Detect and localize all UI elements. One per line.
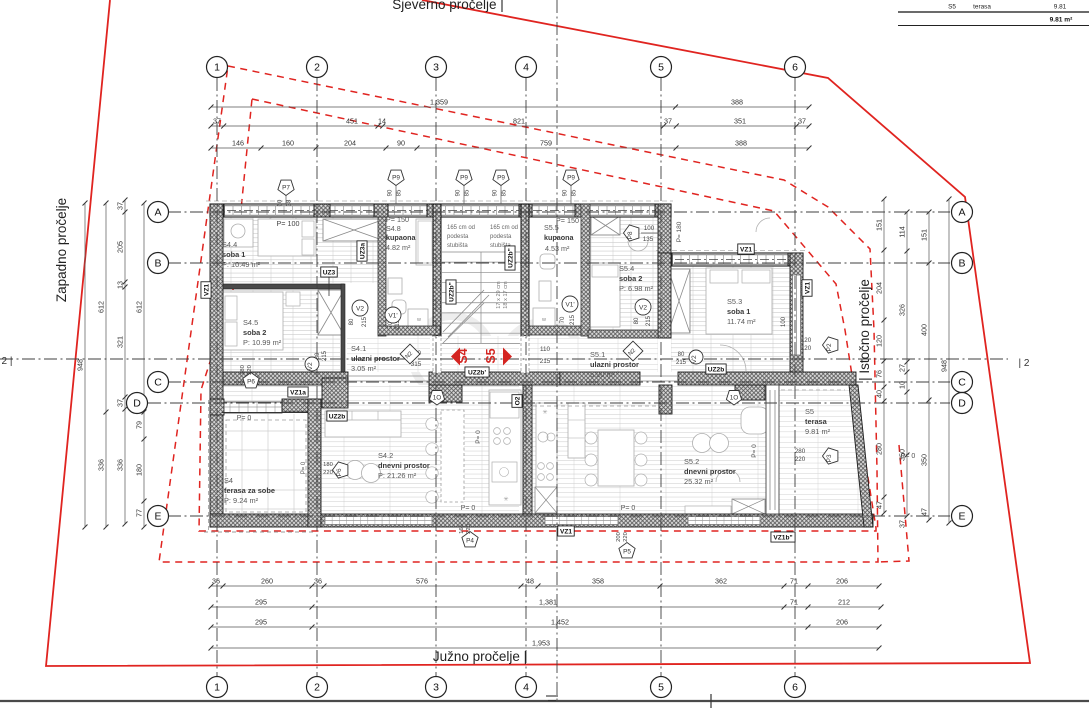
svg-text:350: 350 xyxy=(920,454,929,466)
svg-text:P8: P8 xyxy=(627,231,634,239)
svg-text:5.20 m²: 5.20 m² xyxy=(590,370,616,379)
svg-text:S5: S5 xyxy=(484,348,498,363)
svg-text:S5: S5 xyxy=(805,407,814,416)
svg-text:100: 100 xyxy=(644,225,655,232)
svg-text:1,381: 1,381 xyxy=(539,598,557,607)
svg-text:3.05 m²: 3.05 m² xyxy=(351,364,377,373)
svg-text:B: B xyxy=(958,258,965,270)
svg-text:S4.5: S4.5 xyxy=(243,318,258,327)
svg-text:ulazni prostor: ulazni prostor xyxy=(590,360,639,369)
svg-text:100: 100 xyxy=(781,316,787,327)
svg-text:E: E xyxy=(958,511,965,523)
svg-text:90: 90 xyxy=(563,189,569,196)
svg-text:47: 47 xyxy=(875,501,884,509)
svg-text:165: 165 xyxy=(459,524,465,534)
svg-text:E: E xyxy=(154,511,161,523)
svg-text:362: 362 xyxy=(715,577,727,586)
svg-text:stubišta: stubišta xyxy=(447,243,468,249)
svg-text:dnevni prostor: dnevni prostor xyxy=(378,461,430,470)
svg-text:P: 10.49 m²: P: 10.49 m² xyxy=(222,260,261,269)
svg-text:terasa: terasa xyxy=(973,4,991,11)
svg-text:P= 0: P= 0 xyxy=(301,461,307,474)
svg-text:17 x 29 cm: 17 x 29 cm xyxy=(496,281,502,309)
svg-text:90: 90 xyxy=(397,139,405,148)
svg-text:85: 85 xyxy=(397,189,403,196)
svg-text:9.81 m²: 9.81 m² xyxy=(805,427,831,436)
svg-text:2 |: 2 | xyxy=(2,356,13,367)
svg-text:4.53 m²: 4.53 m² xyxy=(545,244,570,253)
svg-text:212: 212 xyxy=(838,598,850,607)
svg-text:| 2: | 2 xyxy=(1019,358,1030,369)
svg-text:S4.2: S4.2 xyxy=(378,451,393,460)
svg-text:5: 5 xyxy=(658,62,664,74)
svg-text:UZ2b": UZ2b" xyxy=(507,248,514,268)
svg-text:1O: 1O xyxy=(730,394,739,401)
svg-text:400: 400 xyxy=(920,324,929,336)
svg-text:V2: V2 xyxy=(639,304,647,311)
svg-text:220: 220 xyxy=(466,524,472,534)
svg-text:S5.4: S5.4 xyxy=(619,264,634,273)
svg-text:w: w xyxy=(416,317,421,323)
svg-text:O2: O2 xyxy=(514,396,521,405)
svg-text:76: 76 xyxy=(875,370,884,378)
svg-text:37: 37 xyxy=(798,117,806,126)
svg-text:180: 180 xyxy=(135,464,144,476)
svg-text:948: 948 xyxy=(76,359,85,371)
svg-text:S5.1: S5.1 xyxy=(590,350,605,359)
svg-text:P= 0: P= 0 xyxy=(751,444,758,458)
svg-text:4.82 m²: 4.82 m² xyxy=(386,243,411,252)
svg-text:36: 36 xyxy=(314,577,322,586)
svg-text:9.81: 9.81 xyxy=(1054,4,1067,11)
svg-text:ulazni prostor: ulazni prostor xyxy=(351,354,400,363)
svg-text:dnevni prostor: dnevni prostor xyxy=(684,467,736,476)
svg-text:kupaona: kupaona xyxy=(544,233,575,242)
svg-text:1,953: 1,953 xyxy=(532,639,550,648)
svg-text:38: 38 xyxy=(287,199,293,206)
svg-text:280: 280 xyxy=(795,448,806,455)
svg-text:P: 10.99 m²: P: 10.99 m² xyxy=(243,338,282,347)
svg-text:165 cm od: 165 cm od xyxy=(490,225,518,231)
svg-text:P= 0: P= 0 xyxy=(475,430,482,444)
svg-text:180: 180 xyxy=(323,462,333,468)
svg-text:71: 71 xyxy=(790,598,798,607)
svg-text:160: 160 xyxy=(282,139,294,148)
svg-text:120: 120 xyxy=(801,337,812,344)
svg-text:P9: P9 xyxy=(567,174,575,181)
svg-text:terasa za sobe: terasa za sobe xyxy=(224,486,275,495)
svg-text:77: 77 xyxy=(135,509,144,517)
svg-text:60: 60 xyxy=(278,199,284,206)
svg-text:70: 70 xyxy=(560,316,566,323)
svg-text:P= 100: P= 100 xyxy=(277,219,300,228)
svg-text:40: 40 xyxy=(875,390,884,398)
svg-text:P5: P5 xyxy=(623,548,631,555)
svg-text:280: 280 xyxy=(875,443,884,455)
svg-text:18 x 17 cm: 18 x 17 cm xyxy=(503,281,509,309)
svg-text:VZ1: VZ1 xyxy=(560,528,572,535)
svg-text:UZ3a: UZ3a xyxy=(359,243,366,259)
svg-text:P: 21.26 m²: P: 21.26 m² xyxy=(378,471,417,480)
svg-text:451: 451 xyxy=(346,117,358,126)
svg-text:kupaona: kupaona xyxy=(386,233,417,242)
svg-text:P2: P2 xyxy=(826,343,833,351)
svg-text:P= 0: P= 0 xyxy=(461,505,476,512)
svg-text:37: 37 xyxy=(664,117,672,126)
svg-text:P= 0: P= 0 xyxy=(621,505,636,512)
svg-text:135: 135 xyxy=(643,236,654,243)
svg-text:UZ2b': UZ2b' xyxy=(468,369,486,376)
svg-text:P: 6.98 m²: P: 6.98 m² xyxy=(619,284,654,293)
svg-text:P6: P6 xyxy=(247,378,255,385)
svg-text:110: 110 xyxy=(540,346,551,353)
svg-text:220: 220 xyxy=(623,532,629,542)
svg-text:1,359: 1,359 xyxy=(430,98,448,107)
svg-text:UZ3: UZ3 xyxy=(323,269,336,276)
svg-text:576: 576 xyxy=(416,577,428,586)
svg-text:Zapadno pročelje: Zapadno pročelje xyxy=(54,198,69,302)
svg-text:90: 90 xyxy=(493,189,499,196)
svg-text:25.32 m²: 25.32 m² xyxy=(684,477,714,486)
svg-text:321: 321 xyxy=(116,336,125,348)
svg-text:A: A xyxy=(154,207,161,219)
svg-text:759: 759 xyxy=(540,139,552,148)
svg-text:200: 200 xyxy=(616,532,622,542)
svg-text:180: 180 xyxy=(240,365,246,375)
svg-text:P3: P3 xyxy=(826,454,833,462)
svg-text:220: 220 xyxy=(795,456,806,463)
svg-text:✳: ✳ xyxy=(542,409,547,416)
svg-text:VZ1a: VZ1a xyxy=(290,389,306,396)
svg-text:soba 1: soba 1 xyxy=(727,307,750,316)
svg-text:37: 37 xyxy=(898,520,907,528)
svg-text:w: w xyxy=(541,317,546,323)
svg-text:85: 85 xyxy=(465,189,471,196)
svg-text:80: 80 xyxy=(678,352,685,358)
svg-text:C: C xyxy=(154,377,162,389)
svg-text:6: 6 xyxy=(792,62,798,74)
svg-text:terasa: terasa xyxy=(805,417,828,426)
svg-text:P= 150: P= 150 xyxy=(386,215,409,224)
svg-text:P4: P4 xyxy=(466,537,474,544)
svg-text:D: D xyxy=(133,398,141,410)
svg-text:✳: ✳ xyxy=(503,496,508,503)
svg-text:P6: P6 xyxy=(336,468,343,476)
svg-text:5: 5 xyxy=(658,682,664,694)
svg-text:V2: V2 xyxy=(307,362,314,370)
svg-text:VZ1: VZ1 xyxy=(203,284,210,296)
svg-text:2: 2 xyxy=(314,62,320,74)
svg-text:90: 90 xyxy=(456,189,462,196)
svg-text:204: 204 xyxy=(875,282,884,294)
svg-text:3: 3 xyxy=(433,62,439,74)
svg-text:P: 9.24 m²: P: 9.24 m² xyxy=(224,496,259,505)
svg-text:V1': V1' xyxy=(388,312,397,319)
svg-text:P= 180: P= 180 xyxy=(676,221,683,242)
svg-text:215: 215 xyxy=(540,358,551,365)
svg-text:80: 80 xyxy=(634,317,640,324)
svg-text:S4: S4 xyxy=(456,348,470,363)
svg-text:P9: P9 xyxy=(497,174,505,181)
svg-text:1: 1 xyxy=(214,682,220,694)
svg-text:948: 948 xyxy=(940,360,949,372)
svg-text:P= 0: P= 0 xyxy=(237,415,252,422)
svg-text:336: 336 xyxy=(97,459,106,471)
svg-text:220: 220 xyxy=(323,470,333,476)
svg-text:206: 206 xyxy=(836,618,848,627)
svg-text:VZ1: VZ1 xyxy=(740,246,752,253)
svg-text:S5: S5 xyxy=(948,4,956,11)
svg-text:48: 48 xyxy=(526,577,534,586)
svg-text:Južno pročelje |: Južno pročelje | xyxy=(433,649,527,664)
svg-text:podesta: podesta xyxy=(447,234,469,240)
svg-text:37: 37 xyxy=(116,399,125,407)
svg-text:120: 120 xyxy=(875,335,884,347)
svg-text:260: 260 xyxy=(261,577,273,586)
svg-text:204: 204 xyxy=(344,139,356,148)
svg-text:VZ1: VZ1 xyxy=(804,282,811,294)
svg-text:soba 2: soba 2 xyxy=(243,328,266,337)
svg-text:V1': V1' xyxy=(565,301,574,308)
svg-text:S4: S4 xyxy=(224,476,233,485)
svg-text:P= 150: P= 150 xyxy=(556,216,579,225)
svg-text:2: 2 xyxy=(314,682,320,694)
svg-text:165 cm od: 165 cm od xyxy=(447,225,475,231)
svg-text:Sjeverno pročelje |: Sjeverno pročelje | xyxy=(392,0,504,12)
svg-text:UZ2b": UZ2b" xyxy=(448,282,455,302)
svg-text:388: 388 xyxy=(735,139,747,148)
svg-text:14: 14 xyxy=(378,117,386,126)
svg-text:VZ1b": VZ1b" xyxy=(773,534,792,541)
svg-text:S4.8: S4.8 xyxy=(386,224,401,233)
svg-text:336: 336 xyxy=(116,459,125,471)
svg-text:9.81 m²: 9.81 m² xyxy=(1050,17,1074,24)
svg-text:351: 351 xyxy=(734,117,746,126)
svg-text:27: 27 xyxy=(898,364,907,372)
svg-text:UZ2b: UZ2b xyxy=(708,366,724,373)
svg-text:358: 358 xyxy=(592,577,604,586)
svg-text:V2: V2 xyxy=(691,355,698,363)
svg-text:36: 36 xyxy=(212,577,220,586)
svg-text:114: 114 xyxy=(898,226,907,237)
svg-text:1O: 1O xyxy=(433,394,442,401)
svg-text:85: 85 xyxy=(502,189,508,196)
svg-text:3: 3 xyxy=(433,682,439,694)
svg-text:215: 215 xyxy=(676,360,687,366)
svg-text:P7: P7 xyxy=(282,184,290,191)
svg-text:151: 151 xyxy=(875,219,884,231)
svg-text:220: 220 xyxy=(247,365,253,375)
svg-text:4: 4 xyxy=(523,62,529,74)
svg-text:P= 0: P= 0 xyxy=(901,453,916,460)
svg-text:S4.4: S4.4 xyxy=(222,240,237,249)
svg-text:C: C xyxy=(958,377,966,389)
svg-text:P9: P9 xyxy=(392,174,400,181)
svg-text:A: A xyxy=(958,207,965,219)
svg-text:UZ2b: UZ2b xyxy=(329,413,345,420)
svg-text:120: 120 xyxy=(801,345,812,352)
svg-text:6: 6 xyxy=(792,682,798,694)
svg-text:85: 85 xyxy=(572,189,578,196)
svg-text:206: 206 xyxy=(836,577,848,586)
svg-text:soba 1: soba 1 xyxy=(222,250,245,259)
svg-text:80: 80 xyxy=(349,318,355,325)
svg-text:79: 79 xyxy=(135,421,144,429)
svg-text:13: 13 xyxy=(116,281,125,289)
svg-text:71: 71 xyxy=(790,577,798,586)
svg-text:326: 326 xyxy=(898,304,907,316)
svg-text:1: 1 xyxy=(214,62,220,74)
svg-text:D: D xyxy=(958,398,966,410)
svg-text:B: B xyxy=(154,258,161,270)
svg-text:215: 215 xyxy=(570,314,576,325)
svg-text:388: 388 xyxy=(731,98,743,107)
svg-text:215: 215 xyxy=(362,316,368,327)
svg-text:151: 151 xyxy=(920,229,929,241)
svg-text:47: 47 xyxy=(920,508,929,516)
svg-text:146: 146 xyxy=(232,139,244,148)
svg-text:612: 612 xyxy=(135,301,144,313)
svg-text:| Istočno pročelje: | Istočno pročelje xyxy=(857,279,872,381)
svg-text:37: 37 xyxy=(116,202,125,210)
svg-text:podesta: podesta xyxy=(490,234,512,240)
svg-text:V2: V2 xyxy=(356,305,364,312)
svg-text:1,452: 1,452 xyxy=(551,618,569,627)
svg-text:215: 215 xyxy=(322,350,328,361)
svg-text:295: 295 xyxy=(255,618,267,627)
svg-text:11.74 m²: 11.74 m² xyxy=(727,317,756,326)
svg-text:90: 90 xyxy=(388,189,394,196)
svg-text:S4.1: S4.1 xyxy=(351,344,366,353)
svg-text:215: 215 xyxy=(646,315,652,326)
svg-text:295: 295 xyxy=(255,598,267,607)
svg-text:821: 821 xyxy=(513,117,525,126)
svg-text:S5.2: S5.2 xyxy=(684,457,699,466)
svg-text:S5.3: S5.3 xyxy=(727,297,742,306)
svg-text:612: 612 xyxy=(97,301,106,313)
svg-text:205: 205 xyxy=(116,241,125,253)
svg-text:P9: P9 xyxy=(460,174,468,181)
svg-text:4: 4 xyxy=(523,682,529,694)
svg-text:soba 2: soba 2 xyxy=(619,274,642,283)
